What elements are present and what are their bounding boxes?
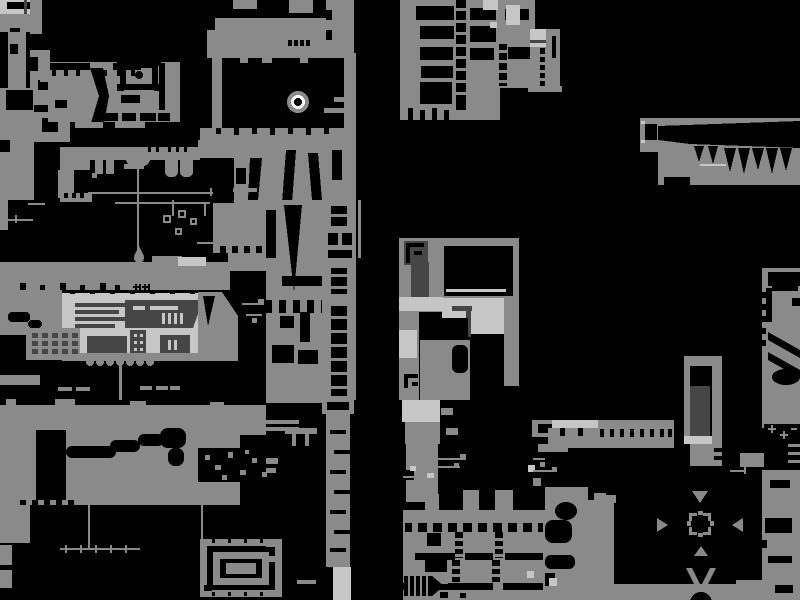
map-shape [452, 560, 460, 585]
map-shape [330, 470, 346, 474]
map-shape [6, 90, 33, 110]
map-shape [156, 147, 159, 152]
map-shape [212, 539, 215, 543]
map-shape [228, 592, 231, 596]
map-shape [197, 242, 263, 244]
map-shape [115, 285, 120, 290]
map-shape [158, 113, 170, 121]
map-shape [487, 523, 493, 532]
map-shape [698, 533, 703, 537]
map-shape [75, 303, 125, 307]
map-shape [420, 26, 454, 39]
map-shape [24, 0, 27, 14]
map-shape [422, 318, 468, 340]
map-shape [272, 345, 294, 363]
map-shape [402, 400, 440, 422]
map-shape [399, 330, 417, 358]
map-shape [456, 20, 466, 23]
map-shape [762, 328, 766, 334]
map-shape [75, 317, 127, 321]
map-shape [793, 128, 797, 140]
map-shape [148, 147, 151, 152]
map-shape [62, 341, 68, 346]
map-shape [106, 358, 114, 366]
map-shape [762, 304, 766, 310]
map-shape [117, 84, 124, 91]
map-shape [442, 523, 448, 532]
map-shape [456, 68, 466, 71]
map-shape [205, 455, 210, 460]
map-shape [260, 592, 263, 596]
map-shape [178, 257, 206, 266]
map-shape [282, 276, 324, 286]
map-shape [28, 320, 42, 328]
map-shape [506, 5, 520, 25]
map-shape [560, 428, 565, 436]
map-shape [421, 66, 453, 78]
map-shape [135, 84, 141, 90]
map-shape [334, 450, 350, 454]
map-shape [765, 518, 792, 533]
map-shape [505, 553, 543, 560]
map-shape [117, 59, 124, 66]
map-shape [555, 502, 577, 520]
map-shape [772, 369, 800, 385]
map-shape [247, 188, 257, 192]
map-shape [606, 495, 616, 503]
map-shape [331, 386, 347, 389]
map-shape [124, 164, 144, 169]
map-shape [233, 188, 243, 192]
map-shape [463, 490, 479, 510]
map-shape [472, 523, 478, 532]
map-shape [131, 70, 135, 76]
map-shape [285, 428, 317, 434]
map-shape [80, 545, 82, 553]
map-shape [286, 300, 293, 313]
map-shape [689, 527, 692, 535]
map-shape [288, 128, 293, 134]
map-shape [52, 70, 56, 76]
map-shape [455, 554, 463, 557]
map-shape [8, 32, 26, 96]
map-shape [714, 448, 722, 452]
map-shape [768, 272, 800, 286]
map-shape [517, 523, 523, 532]
map-shape [150, 306, 178, 310]
map-shape [0, 375, 40, 385]
map-shape [331, 306, 347, 396]
map-shape [540, 462, 545, 467]
map-shape [165, 217, 169, 221]
map-shape [146, 358, 154, 366]
map-shape [330, 548, 346, 552]
game-world-map [0, 0, 800, 600]
map-shape [791, 428, 797, 430]
map-shape [228, 452, 233, 458]
map-shape [328, 233, 338, 245]
map-shape [174, 340, 177, 350]
map-shape [528, 86, 562, 92]
map-shape [788, 460, 800, 463]
map-shape [444, 110, 449, 120]
map-shape [55, 399, 75, 407]
map-shape [270, 128, 275, 135]
map-shape [324, 128, 329, 134]
map-shape [30, 0, 42, 34]
map-shape [331, 274, 347, 277]
map-shape [204, 585, 212, 591]
map-shape [75, 122, 103, 128]
map-shape [499, 50, 507, 53]
map-shape [331, 358, 347, 361]
map-shape [210, 188, 212, 196]
map-shape [404, 374, 408, 388]
map-shape [768, 556, 792, 563]
map-shape [538, 444, 568, 452]
map-shape [266, 468, 276, 473]
map-shape [427, 473, 434, 478]
map-shape [533, 458, 545, 460]
map-shape [170, 290, 175, 294]
map-shape [540, 78, 545, 81]
map-shape [540, 54, 545, 57]
map-shape [233, 0, 257, 9]
map-shape [134, 253, 144, 263]
map-shape [220, 246, 226, 253]
map-shape [222, 475, 227, 480]
map-shape [100, 283, 106, 290]
map-shape [133, 286, 141, 288]
map-shape [456, 8, 466, 11]
map-shape [300, 312, 310, 342]
map-shape [130, 290, 135, 294]
map-shape [72, 333, 78, 338]
map-shape [116, 358, 124, 366]
map-shape [540, 70, 545, 73]
map-shape [244, 246, 250, 253]
map-shape [410, 466, 416, 471]
map-shape [115, 202, 210, 204]
map-shape [0, 570, 12, 588]
map-shape [215, 465, 221, 470]
map-shape [170, 386, 180, 390]
map-shape [334, 97, 354, 102]
map-shape [456, 32, 466, 35]
map-shape [331, 344, 347, 347]
map-shape [252, 318, 257, 323]
map-shape [52, 341, 58, 346]
map-shape [28, 203, 45, 205]
map-shape [134, 334, 137, 337]
map-shape [240, 58, 248, 63]
map-shape [408, 576, 410, 596]
map-shape [305, 434, 309, 446]
map-shape [399, 297, 443, 311]
map-shape [420, 576, 422, 596]
map-shape [168, 147, 171, 152]
map-shape [775, 585, 793, 593]
map-shape [32, 341, 38, 346]
map-shape [228, 253, 266, 271]
map-shape [121, 95, 140, 103]
map-shape [414, 576, 416, 596]
map-shape [331, 286, 347, 289]
map-shape [72, 349, 78, 354]
map-shape [732, 518, 743, 532]
map-shape [134, 348, 137, 351]
map-shape [492, 574, 500, 577]
map-shape [168, 448, 184, 466]
map-shape [527, 571, 534, 578]
map-shape [470, 26, 496, 42]
map-shape [6, 399, 16, 407]
map-shape [762, 292, 766, 298]
map-shape [80, 285, 85, 290]
map-shape [0, 140, 10, 152]
map-shape [160, 428, 186, 448]
map-shape [598, 420, 674, 428]
map-shape [326, 30, 332, 40]
map-shape [259, 188, 267, 192]
map-shape [427, 523, 433, 532]
map-shape [76, 70, 80, 76]
map-shape [72, 341, 78, 346]
map-shape [44, 500, 50, 507]
map-shape [192, 220, 195, 223]
map-shape [792, 298, 800, 306]
map-shape [76, 387, 90, 391]
map-shape [441, 408, 453, 415]
map-shape [246, 314, 262, 316]
map-shape [314, 300, 321, 313]
map-shape [142, 290, 150, 292]
map-shape [640, 585, 662, 600]
map-shape [135, 71, 143, 79]
map-shape [788, 452, 800, 455]
map-shape [0, 200, 8, 230]
map-shape [32, 349, 38, 354]
map-shape [770, 126, 774, 134]
map-shape [552, 36, 556, 58]
map-shape [234, 128, 239, 135]
map-shape [470, 48, 494, 60]
map-shape [133, 306, 145, 310]
map-shape [412, 382, 418, 386]
map-shape [177, 230, 180, 233]
map-shape [88, 502, 90, 550]
map-shape [766, 288, 772, 322]
map-shape [786, 126, 790, 134]
map-shape [292, 434, 296, 446]
map-shape [15, 215, 17, 223]
map-shape [70, 290, 75, 294]
map-shape [425, 558, 447, 572]
map-shape [684, 356, 722, 366]
map-shape [499, 70, 507, 73]
map-shape [294, 40, 298, 46]
map-shape [545, 555, 575, 569]
map-shape [460, 593, 466, 598]
map-shape [708, 513, 711, 521]
map-shape [162, 313, 165, 324]
map-shape [207, 18, 327, 58]
map-shape [342, 233, 352, 245]
map-shape [772, 286, 798, 291]
map-shape [52, 333, 58, 338]
map-shape [306, 128, 311, 135]
map-shape [744, 466, 746, 474]
map-shape [213, 203, 266, 253]
map-shape [134, 341, 137, 344]
map-shape [122, 113, 136, 121]
map-shape [62, 333, 68, 338]
map-shape [50, 63, 90, 70]
map-shape [708, 527, 711, 535]
map-shape [80, 193, 84, 198]
map-shape [75, 310, 119, 314]
map-shape [60, 283, 66, 290]
map-shape [690, 386, 710, 436]
map-shape [232, 246, 238, 253]
map-shape [328, 250, 352, 258]
map-shape [456, 56, 466, 59]
map-shape [152, 256, 182, 264]
map-shape [64, 193, 68, 198]
map-shape [411, 262, 429, 298]
map-shape [244, 592, 247, 596]
map-shape [331, 214, 347, 217]
map-shape [96, 358, 104, 366]
map-shape [252, 458, 257, 463]
map-shape [198, 292, 238, 361]
map-shape [405, 422, 440, 444]
map-shape [32, 500, 38, 507]
map-shape [7, 2, 31, 9]
map-shape [408, 108, 413, 120]
map-shape [140, 386, 152, 390]
map-shape [552, 467, 557, 472]
map-shape [298, 350, 318, 364]
map-shape [420, 110, 425, 120]
map-shape [492, 560, 500, 585]
map-shape [20, 283, 26, 290]
map-shape [216, 128, 221, 134]
map-shape [236, 168, 246, 184]
map-shape [92, 173, 97, 178]
map-shape [280, 316, 294, 328]
map-shape [288, 40, 292, 46]
map-shape [455, 546, 463, 549]
map-shape [75, 324, 115, 328]
map-shape [533, 470, 553, 472]
map-shape [272, 300, 279, 313]
map-shape [549, 578, 557, 586]
map-shape [446, 428, 458, 435]
map-shape [10, 44, 18, 54]
map-shape [499, 60, 507, 63]
map-shape [266, 210, 276, 258]
map-shape [420, 82, 452, 104]
map-shape [552, 420, 598, 428]
map-shape [228, 539, 231, 543]
map-shape [499, 80, 507, 83]
map-shape [60, 548, 140, 550]
map-shape [125, 545, 127, 553]
map-shape [684, 366, 690, 436]
map-shape [30, 57, 38, 71]
map-shape [641, 121, 645, 124]
map-shape [0, 505, 30, 543]
map-shape [446, 289, 506, 292]
map-shape [289, 0, 313, 13]
map-shape [508, 47, 530, 59]
map-shape [119, 366, 122, 400]
map-shape [135, 59, 141, 65]
map-shape [266, 543, 279, 547]
map-shape [490, 22, 497, 28]
map-shape [694, 546, 708, 556]
map-shape [540, 62, 545, 65]
map-shape [245, 450, 249, 454]
map-shape [689, 513, 692, 521]
map-shape [136, 358, 144, 366]
map-shape [416, 6, 454, 20]
world-map-canvas [0, 0, 800, 600]
map-shape [204, 202, 206, 216]
map-shape [212, 592, 215, 596]
map-shape [645, 124, 657, 140]
map-shape [300, 300, 307, 313]
map-shape [664, 177, 690, 185]
map-shape [454, 463, 459, 468]
map-shape [180, 212, 184, 216]
map-shape [406, 243, 410, 263]
map-shape [174, 313, 177, 324]
map-shape [412, 523, 418, 532]
map-shape [455, 538, 463, 541]
map-shape [533, 478, 541, 486]
map-shape [457, 523, 463, 532]
map-shape [492, 582, 500, 585]
map-shape [495, 546, 503, 549]
map-shape [300, 40, 304, 46]
map-shape [258, 299, 264, 305]
map-shape [641, 140, 645, 143]
map-shape [700, 164, 726, 166]
map-shape [110, 440, 140, 452]
map-shape [432, 584, 470, 590]
map-shape [331, 372, 347, 375]
map-shape [55, 100, 67, 108]
map-shape [36, 430, 66, 500]
map-shape [330, 430, 346, 434]
map-shape [330, 510, 346, 514]
map-shape [110, 545, 112, 553]
map-shape [95, 545, 97, 553]
map-shape [495, 554, 503, 557]
map-shape [657, 518, 668, 532]
map-shape [495, 490, 513, 510]
map-shape [771, 425, 773, 433]
map-shape [88, 192, 213, 194]
map-shape [530, 29, 546, 47]
map-shape [770, 480, 790, 488]
map-shape [168, 340, 171, 350]
map-shape [86, 358, 94, 366]
map-shape [762, 540, 767, 548]
map-shape [456, 80, 466, 83]
